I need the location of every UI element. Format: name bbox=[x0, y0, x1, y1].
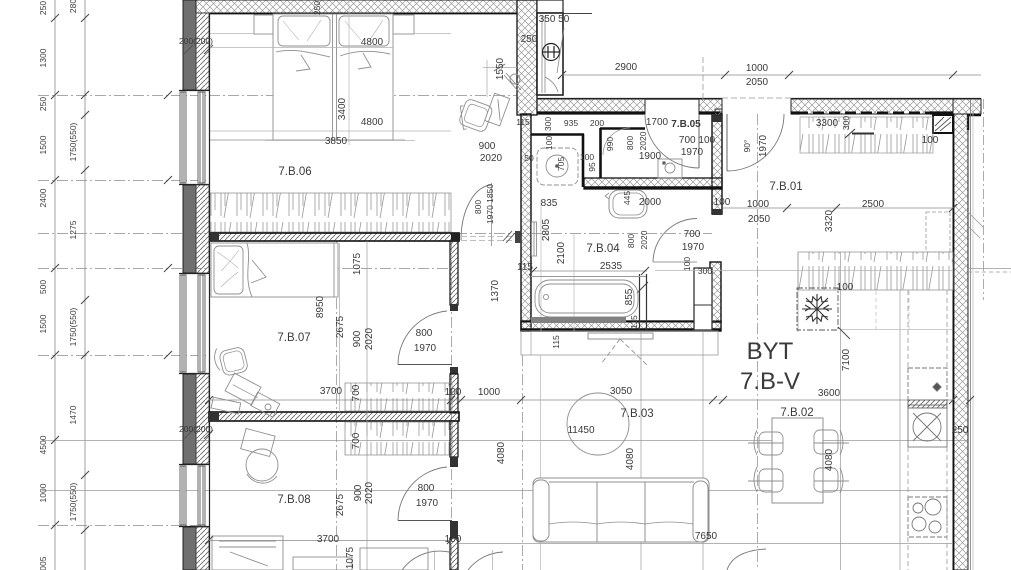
svg-text:2050: 2050 bbox=[746, 77, 769, 88]
svg-text:700: 700 bbox=[351, 432, 362, 449]
svg-text:200(200): 200(200) bbox=[179, 36, 213, 46]
svg-text:115: 115 bbox=[629, 315, 639, 329]
svg-text:1370: 1370 bbox=[490, 279, 501, 302]
svg-text:1000: 1000 bbox=[38, 483, 48, 502]
svg-text:350 50: 350 50 bbox=[539, 14, 570, 25]
svg-text:1970: 1970 bbox=[682, 242, 705, 253]
svg-text:800: 800 bbox=[625, 136, 635, 150]
svg-text:2500: 2500 bbox=[862, 199, 885, 210]
svg-text:2000: 2000 bbox=[639, 197, 662, 208]
svg-text:115: 115 bbox=[517, 262, 533, 273]
svg-text:2020: 2020 bbox=[639, 230, 649, 249]
svg-text:300: 300 bbox=[841, 116, 851, 130]
svg-text:1000: 1000 bbox=[747, 199, 770, 210]
svg-text:3700: 3700 bbox=[317, 534, 340, 545]
svg-text:1000: 1000 bbox=[478, 387, 501, 398]
svg-text:1275: 1275 bbox=[68, 220, 78, 239]
svg-text:115: 115 bbox=[516, 117, 530, 127]
svg-text:1000: 1000 bbox=[746, 63, 769, 74]
svg-text:7.B.05: 7.B.05 bbox=[671, 119, 701, 130]
svg-text:2020: 2020 bbox=[638, 131, 648, 150]
svg-text:250: 250 bbox=[952, 425, 969, 436]
svg-text:4800: 4800 bbox=[361, 37, 384, 48]
svg-text:100: 100 bbox=[837, 282, 854, 293]
svg-text:4080: 4080 bbox=[496, 441, 507, 464]
svg-text:1470: 1470 bbox=[68, 405, 78, 424]
svg-text:2050: 2050 bbox=[748, 214, 771, 225]
svg-text:2020: 2020 bbox=[364, 481, 375, 504]
svg-text:11450: 11450 bbox=[567, 425, 595, 436]
svg-text:900: 900 bbox=[479, 141, 496, 152]
svg-text:4800: 4800 bbox=[361, 117, 384, 128]
svg-text:100: 100 bbox=[445, 534, 462, 545]
svg-text:1700: 1700 bbox=[646, 117, 669, 128]
svg-text:BYT: BYT bbox=[747, 338, 794, 365]
svg-text:1500: 1500 bbox=[38, 135, 48, 154]
svg-text:3700: 3700 bbox=[320, 386, 343, 397]
svg-text:7.B-V: 7.B-V bbox=[740, 368, 800, 395]
svg-text:4080: 4080 bbox=[625, 447, 636, 470]
svg-text:115: 115 bbox=[551, 335, 561, 349]
svg-text:1970: 1970 bbox=[758, 134, 769, 157]
svg-text:1750(550): 1750(550) bbox=[68, 122, 78, 161]
svg-text:1970: 1970 bbox=[414, 343, 437, 354]
svg-text:200(200): 200(200) bbox=[179, 424, 213, 434]
svg-text:700: 700 bbox=[351, 384, 362, 401]
svg-text:935: 935 bbox=[564, 118, 578, 128]
svg-text:7.B.03: 7.B.03 bbox=[620, 408, 653, 420]
svg-text:2805: 2805 bbox=[541, 218, 552, 241]
svg-text:7.B.02: 7.B.02 bbox=[780, 407, 813, 419]
svg-text:1750(550): 1750(550) bbox=[68, 482, 78, 521]
svg-text:500: 500 bbox=[38, 280, 48, 294]
svg-text:1500: 1500 bbox=[38, 314, 48, 333]
svg-text:7.B.06: 7.B.06 bbox=[278, 166, 311, 178]
svg-text:800: 800 bbox=[418, 483, 435, 494]
svg-text:1900: 1900 bbox=[639, 151, 662, 162]
svg-text:1550: 1550 bbox=[495, 57, 506, 80]
svg-text:990: 990 bbox=[605, 137, 615, 151]
svg-text:700: 700 bbox=[684, 229, 701, 240]
svg-text:7.B.04: 7.B.04 bbox=[586, 243, 620, 255]
svg-text:2675: 2675 bbox=[335, 493, 346, 516]
svg-text:1750(550): 1750(550) bbox=[68, 307, 78, 346]
svg-text:700 100: 700 100 bbox=[679, 135, 716, 146]
svg-text:3600: 3600 bbox=[818, 388, 841, 399]
svg-text:7.B.01: 7.B.01 bbox=[769, 181, 802, 193]
svg-text:800: 800 bbox=[626, 234, 636, 248]
svg-text:250: 250 bbox=[38, 97, 48, 111]
svg-text:2400: 2400 bbox=[38, 188, 48, 207]
svg-text:95: 95 bbox=[587, 162, 597, 172]
svg-text:800: 800 bbox=[473, 200, 483, 214]
svg-text:800: 800 bbox=[416, 328, 433, 339]
svg-text:8950: 8950 bbox=[315, 295, 326, 318]
svg-text:900: 900 bbox=[352, 330, 363, 347]
svg-text:2900: 2900 bbox=[615, 62, 638, 73]
svg-text:7.B.08: 7.B.08 bbox=[277, 494, 310, 506]
svg-text:2020: 2020 bbox=[480, 153, 503, 164]
svg-text:3850: 3850 bbox=[325, 136, 348, 147]
svg-text:7.B.07: 7.B.07 bbox=[277, 332, 310, 344]
svg-text:4080: 4080 bbox=[824, 448, 835, 471]
svg-text:3050: 3050 bbox=[610, 386, 633, 397]
svg-text:3320: 3320 bbox=[824, 209, 835, 232]
svg-text:300: 300 bbox=[698, 266, 712, 276]
svg-text:7650: 7650 bbox=[695, 531, 718, 542]
svg-text:1075: 1075 bbox=[345, 546, 356, 569]
svg-text:445: 445 bbox=[622, 191, 632, 205]
svg-text:1005: 1005 bbox=[38, 556, 48, 570]
svg-text:2020: 2020 bbox=[364, 327, 375, 350]
svg-text:705: 705 bbox=[556, 157, 566, 171]
svg-text:1075: 1075 bbox=[352, 252, 363, 275]
svg-text:900: 900 bbox=[353, 484, 364, 501]
svg-text:250: 250 bbox=[521, 34, 538, 45]
svg-text:3300: 3300 bbox=[816, 118, 839, 129]
svg-text:300: 300 bbox=[543, 117, 553, 131]
svg-text:3400: 3400 bbox=[337, 97, 348, 120]
svg-text:1970 1850: 1970 1850 bbox=[485, 184, 495, 224]
svg-text:90°: 90° bbox=[742, 140, 752, 153]
svg-text:50: 50 bbox=[524, 153, 534, 163]
svg-text:7100: 7100 bbox=[841, 348, 852, 371]
svg-text:100: 100 bbox=[580, 152, 594, 162]
svg-text:200: 200 bbox=[590, 118, 604, 128]
svg-text:100: 100 bbox=[714, 197, 731, 208]
svg-text:1970: 1970 bbox=[416, 498, 439, 509]
svg-text:4500: 4500 bbox=[38, 435, 48, 454]
svg-text:100: 100 bbox=[544, 136, 554, 150]
svg-text:100: 100 bbox=[922, 135, 939, 146]
svg-text:250: 250 bbox=[38, 1, 48, 15]
svg-text:280: 280 bbox=[68, 0, 78, 13]
svg-text:2100: 2100 bbox=[556, 241, 567, 264]
svg-text:855: 855 bbox=[624, 288, 635, 305]
svg-text:2675: 2675 bbox=[335, 315, 346, 338]
svg-text:2535: 2535 bbox=[600, 261, 623, 272]
svg-text:250: 250 bbox=[312, 1, 322, 15]
svg-text:100: 100 bbox=[445, 387, 462, 398]
svg-text:100: 100 bbox=[682, 257, 692, 271]
svg-text:1970: 1970 bbox=[681, 147, 704, 158]
svg-text:1300: 1300 bbox=[38, 48, 48, 67]
svg-text:835: 835 bbox=[541, 198, 558, 209]
